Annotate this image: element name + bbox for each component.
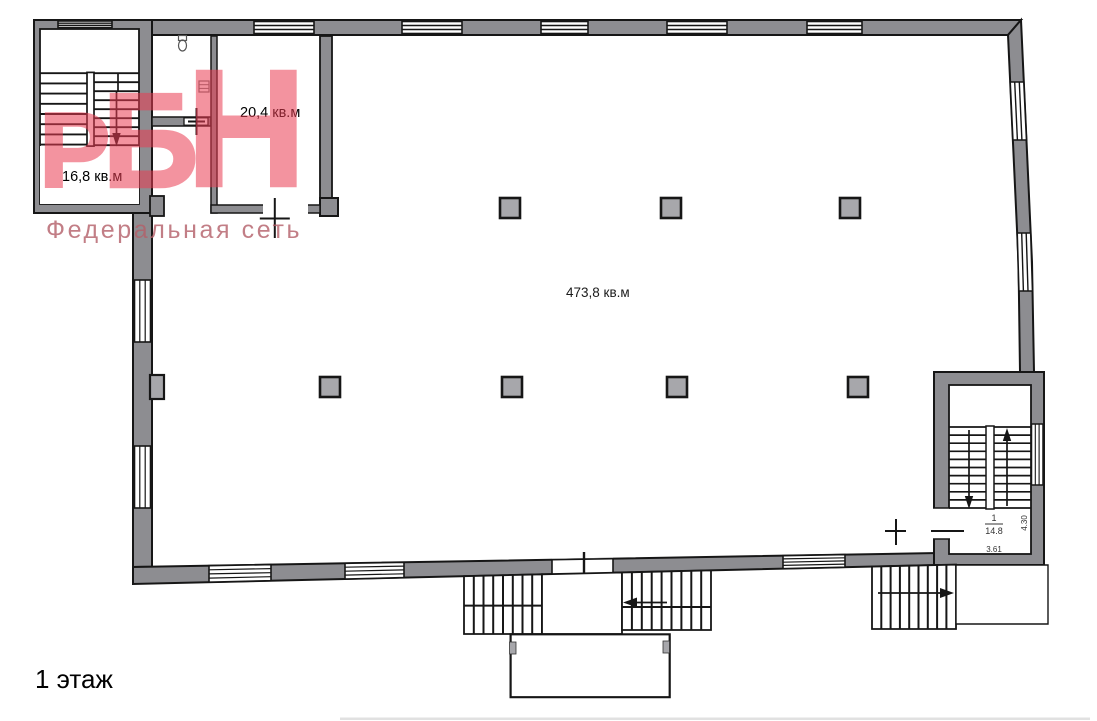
svg-text:1: 1 xyxy=(991,513,996,523)
svg-text:4.30: 4.30 xyxy=(1020,515,1029,531)
svg-text:Р: Р xyxy=(39,90,110,210)
svg-text:473,8 кв.м: 473,8 кв.м xyxy=(566,285,630,300)
svg-text:1 этаж: 1 этаж xyxy=(35,664,113,694)
svg-text:Б: Б xyxy=(102,65,199,216)
svg-text:3.61: 3.61 xyxy=(986,545,1002,554)
svg-text:Федеральная сеть: Федеральная сеть xyxy=(46,216,302,244)
svg-text:Н: Н xyxy=(186,36,307,222)
svg-text:14.8: 14.8 xyxy=(985,526,1003,536)
